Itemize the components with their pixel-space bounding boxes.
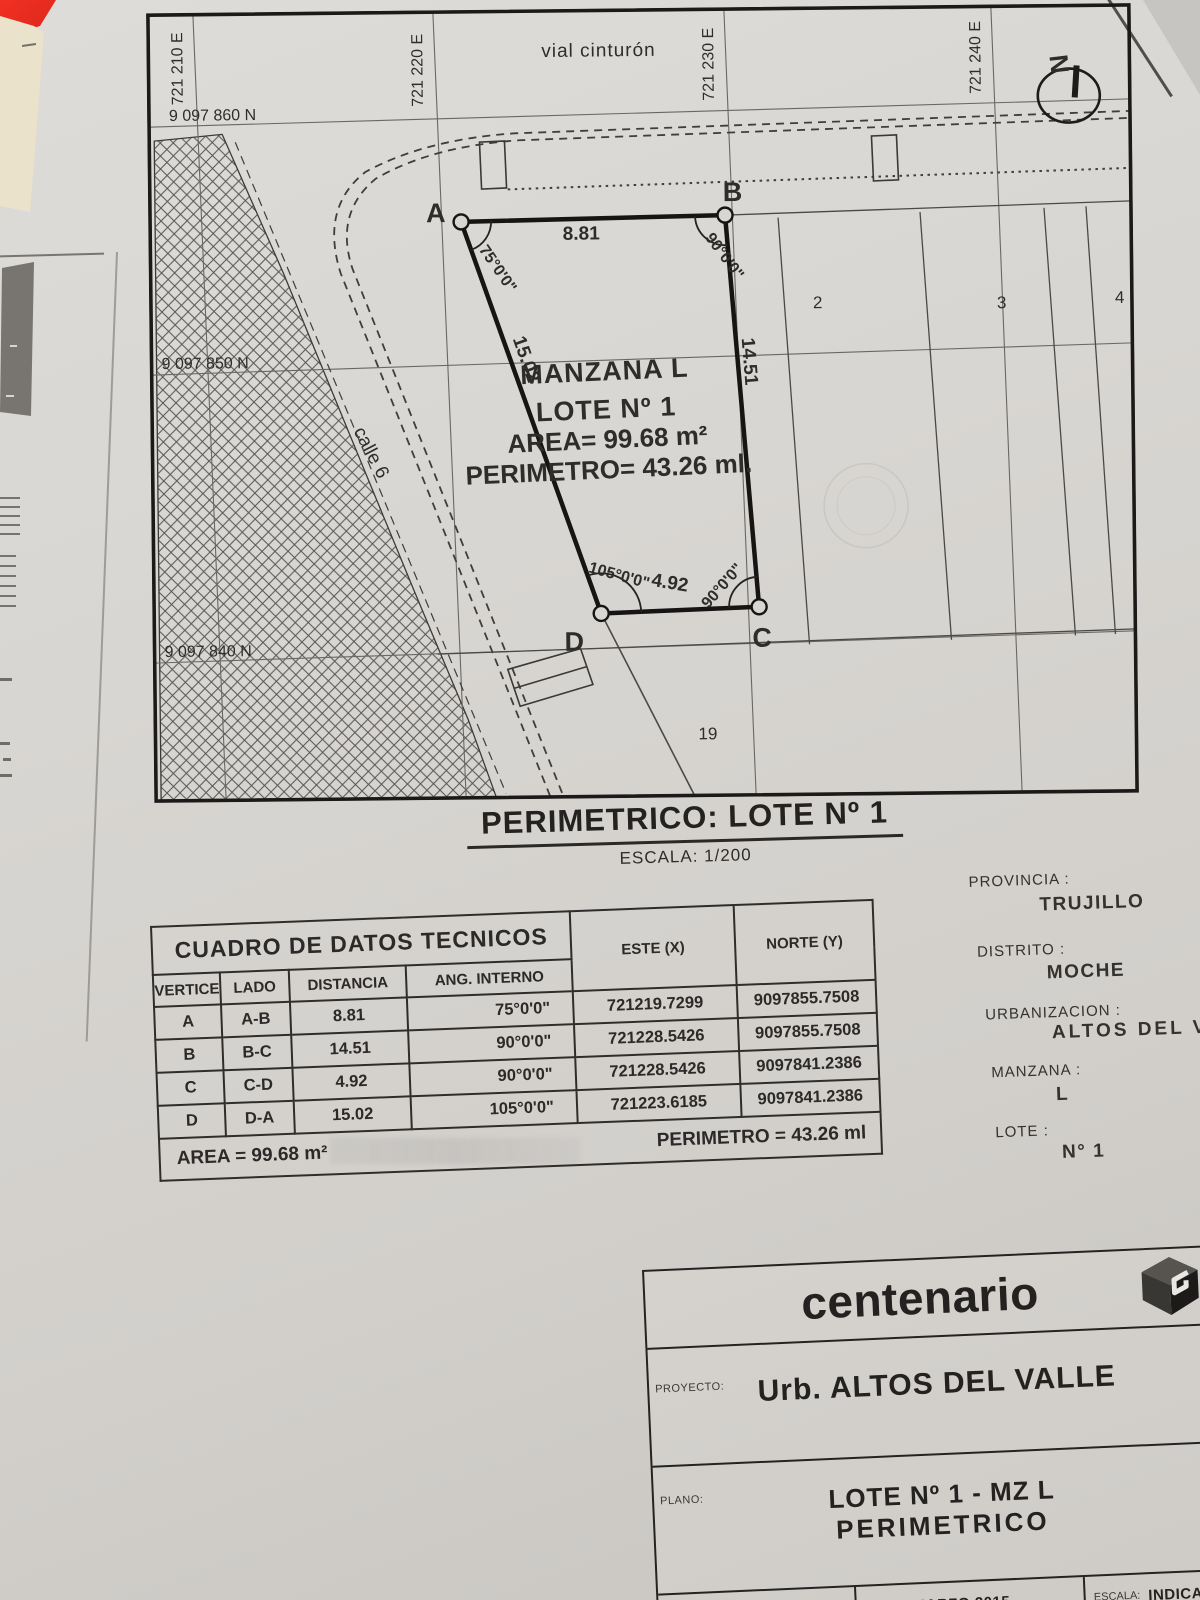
label-mark — [10, 345, 17, 347]
drawing-title-block: centenario PROYECTO: Urb. ALTOS DEL VALL… — [642, 1245, 1200, 1600]
location-info: PROVINCIA : TRUJILLO DISTRITO : MOCHE UR… — [940, 855, 1200, 865]
manzana-value: L — [1056, 1084, 1070, 1106]
cell-lado: B-C — [222, 1035, 292, 1071]
distrito-label: DISTRITO : — [977, 941, 1066, 961]
cell-vertice: C — [157, 1070, 225, 1105]
cell-norte: 9097855.7508 — [736, 980, 876, 1018]
label-mark — [6, 395, 14, 397]
col-header-norte: NORTE (Y) — [733, 900, 875, 985]
grid-east-label: 721 210 E — [169, 32, 187, 105]
lote-label: LOTE : — [995, 1122, 1049, 1141]
neighbor-lot-number: 19 — [698, 724, 717, 743]
neighbor-lot-number: 2 — [813, 293, 823, 312]
project-row: PROYECTO: Urb. ALTOS DEL VALLE — [649, 1355, 1200, 1468]
cell-norte: 9097841.2386 — [740, 1079, 880, 1117]
crease-line — [0, 253, 104, 258]
dark-label-edge — [0, 262, 34, 416]
proyecto-value: Urb. ALTOS DEL VALLE — [649, 1355, 1200, 1414]
company-row: centenario — [644, 1247, 1200, 1350]
underpage-mark — [3, 758, 11, 761]
grid-east-label: 721 240 E — [967, 21, 985, 94]
vertex-label-a: A — [426, 198, 446, 228]
sheet-left-edge-line — [86, 252, 118, 1041]
street-name-top: vial cinturón — [541, 40, 656, 62]
escala-value: INDICADA — [1148, 1583, 1200, 1600]
angle-d: 105°0'0" — [587, 559, 652, 592]
cell-distancia: 4.92 — [292, 1063, 411, 1100]
col-header-lado: LADO — [220, 970, 290, 1005]
angle-a: 75°0'0" — [475, 242, 519, 296]
perimeter-total: PERIMETRO = 43.26 ml — [656, 1122, 866, 1152]
grid-east-label: 721 220 E — [409, 34, 427, 107]
vertex-label-c: C — [752, 623, 772, 653]
manzana-label: MANZANA : — [991, 1061, 1081, 1081]
grid-north-label: 9 097 860 N — [169, 107, 256, 125]
dim-cd: 4.92 — [650, 570, 690, 597]
underpage-marks — [0, 497, 20, 539]
scanned-plan-sheet: 721 210 E 721 220 E 721 230 E 721 240 E … — [0, 0, 1200, 1600]
area-total: AREA = 99.68 m² — [176, 1143, 328, 1171]
plan-title-block: PERIMETRICO: LOTE Nº 1 ESCALA: 1/200 — [424, 793, 946, 874]
cell-vertice: D — [158, 1103, 226, 1138]
cell-distancia: 14.51 — [291, 1030, 410, 1067]
underpage-marks — [0, 555, 16, 607]
vertex-label-b: B — [723, 177, 743, 207]
lot-manzana: MANZANA L — [520, 353, 690, 391]
block-division-lines — [433, 201, 1137, 797]
dim-bc: 14.51 — [737, 337, 762, 387]
cell-norte: 9097855.7508 — [738, 1013, 878, 1051]
col-header-distancia: DISTANCIA — [288, 965, 407, 1001]
cell-distancia: 8.81 — [290, 997, 409, 1034]
hatched-area — [154, 132, 496, 800]
plan-title: PERIMETRICO: LOTE Nº 1 — [467, 794, 903, 849]
underpage-mark — [0, 678, 12, 681]
company-name: centenario — [800, 1266, 1040, 1330]
cell-este: 721223.6185 — [576, 1084, 741, 1123]
cell-lado: C-D — [223, 1068, 293, 1104]
stamp-ghost — [824, 463, 909, 548]
underpage-mark — [0, 774, 12, 777]
neighbor-lot-number: 4 — [1115, 288, 1125, 307]
lote-value: N° 1 — [1062, 1140, 1106, 1163]
company-logo-icon — [1137, 1254, 1200, 1321]
dim-ab: 8.81 — [563, 223, 601, 244]
technical-data-table: CUADRO DE DATOS TECNICOS ESTE (X) NORTE … — [150, 899, 883, 1182]
distrito-value: MOCHE — [1046, 960, 1125, 985]
lot-description: MANZANA L LOTE Nº 1 AREA= 99.68 m² PERIM… — [460, 350, 752, 491]
plano-label: PLANO: — [660, 1494, 704, 1508]
grid-north-label: 9 097 850 N — [161, 355, 248, 373]
cell-vertice: B — [155, 1037, 223, 1072]
grid-north-label: 9 097 840 N — [164, 643, 251, 661]
cell-distancia: 15.02 — [293, 1096, 412, 1133]
angle-c: 90°0'0" — [699, 561, 747, 612]
cell-angulo: 105°0'0" — [411, 1090, 577, 1129]
angle-b: 90°0'0" — [701, 230, 746, 283]
col-header-este: ESTE (X) — [570, 905, 737, 991]
cell-norte: 9097841.2386 — [739, 1046, 879, 1084]
compass-n-label: N — [1043, 53, 1075, 75]
neighbor-lot-number: 3 — [997, 293, 1007, 312]
grid-east-label: 721 230 E — [700, 28, 718, 101]
underpage-mark — [0, 742, 10, 745]
provincia-label: PROVINCIA : — [968, 870, 1070, 891]
provincia-value: TRUJILLO — [1039, 891, 1145, 917]
cell-vertice: A — [154, 1004, 222, 1039]
col-header-vertice: VERTICE — [153, 972, 221, 1006]
vertex-label-d: D — [564, 627, 584, 657]
cell-lado: A-B — [221, 1002, 291, 1038]
fecha-value: MARZO 2015 — [912, 1593, 1010, 1600]
cell-lado: D-A — [225, 1101, 295, 1137]
site-plan-drawing: 721 210 E 721 220 E 721 230 E 721 240 E … — [146, 3, 1139, 803]
escala-label: ESCALA: — [1094, 1590, 1141, 1600]
